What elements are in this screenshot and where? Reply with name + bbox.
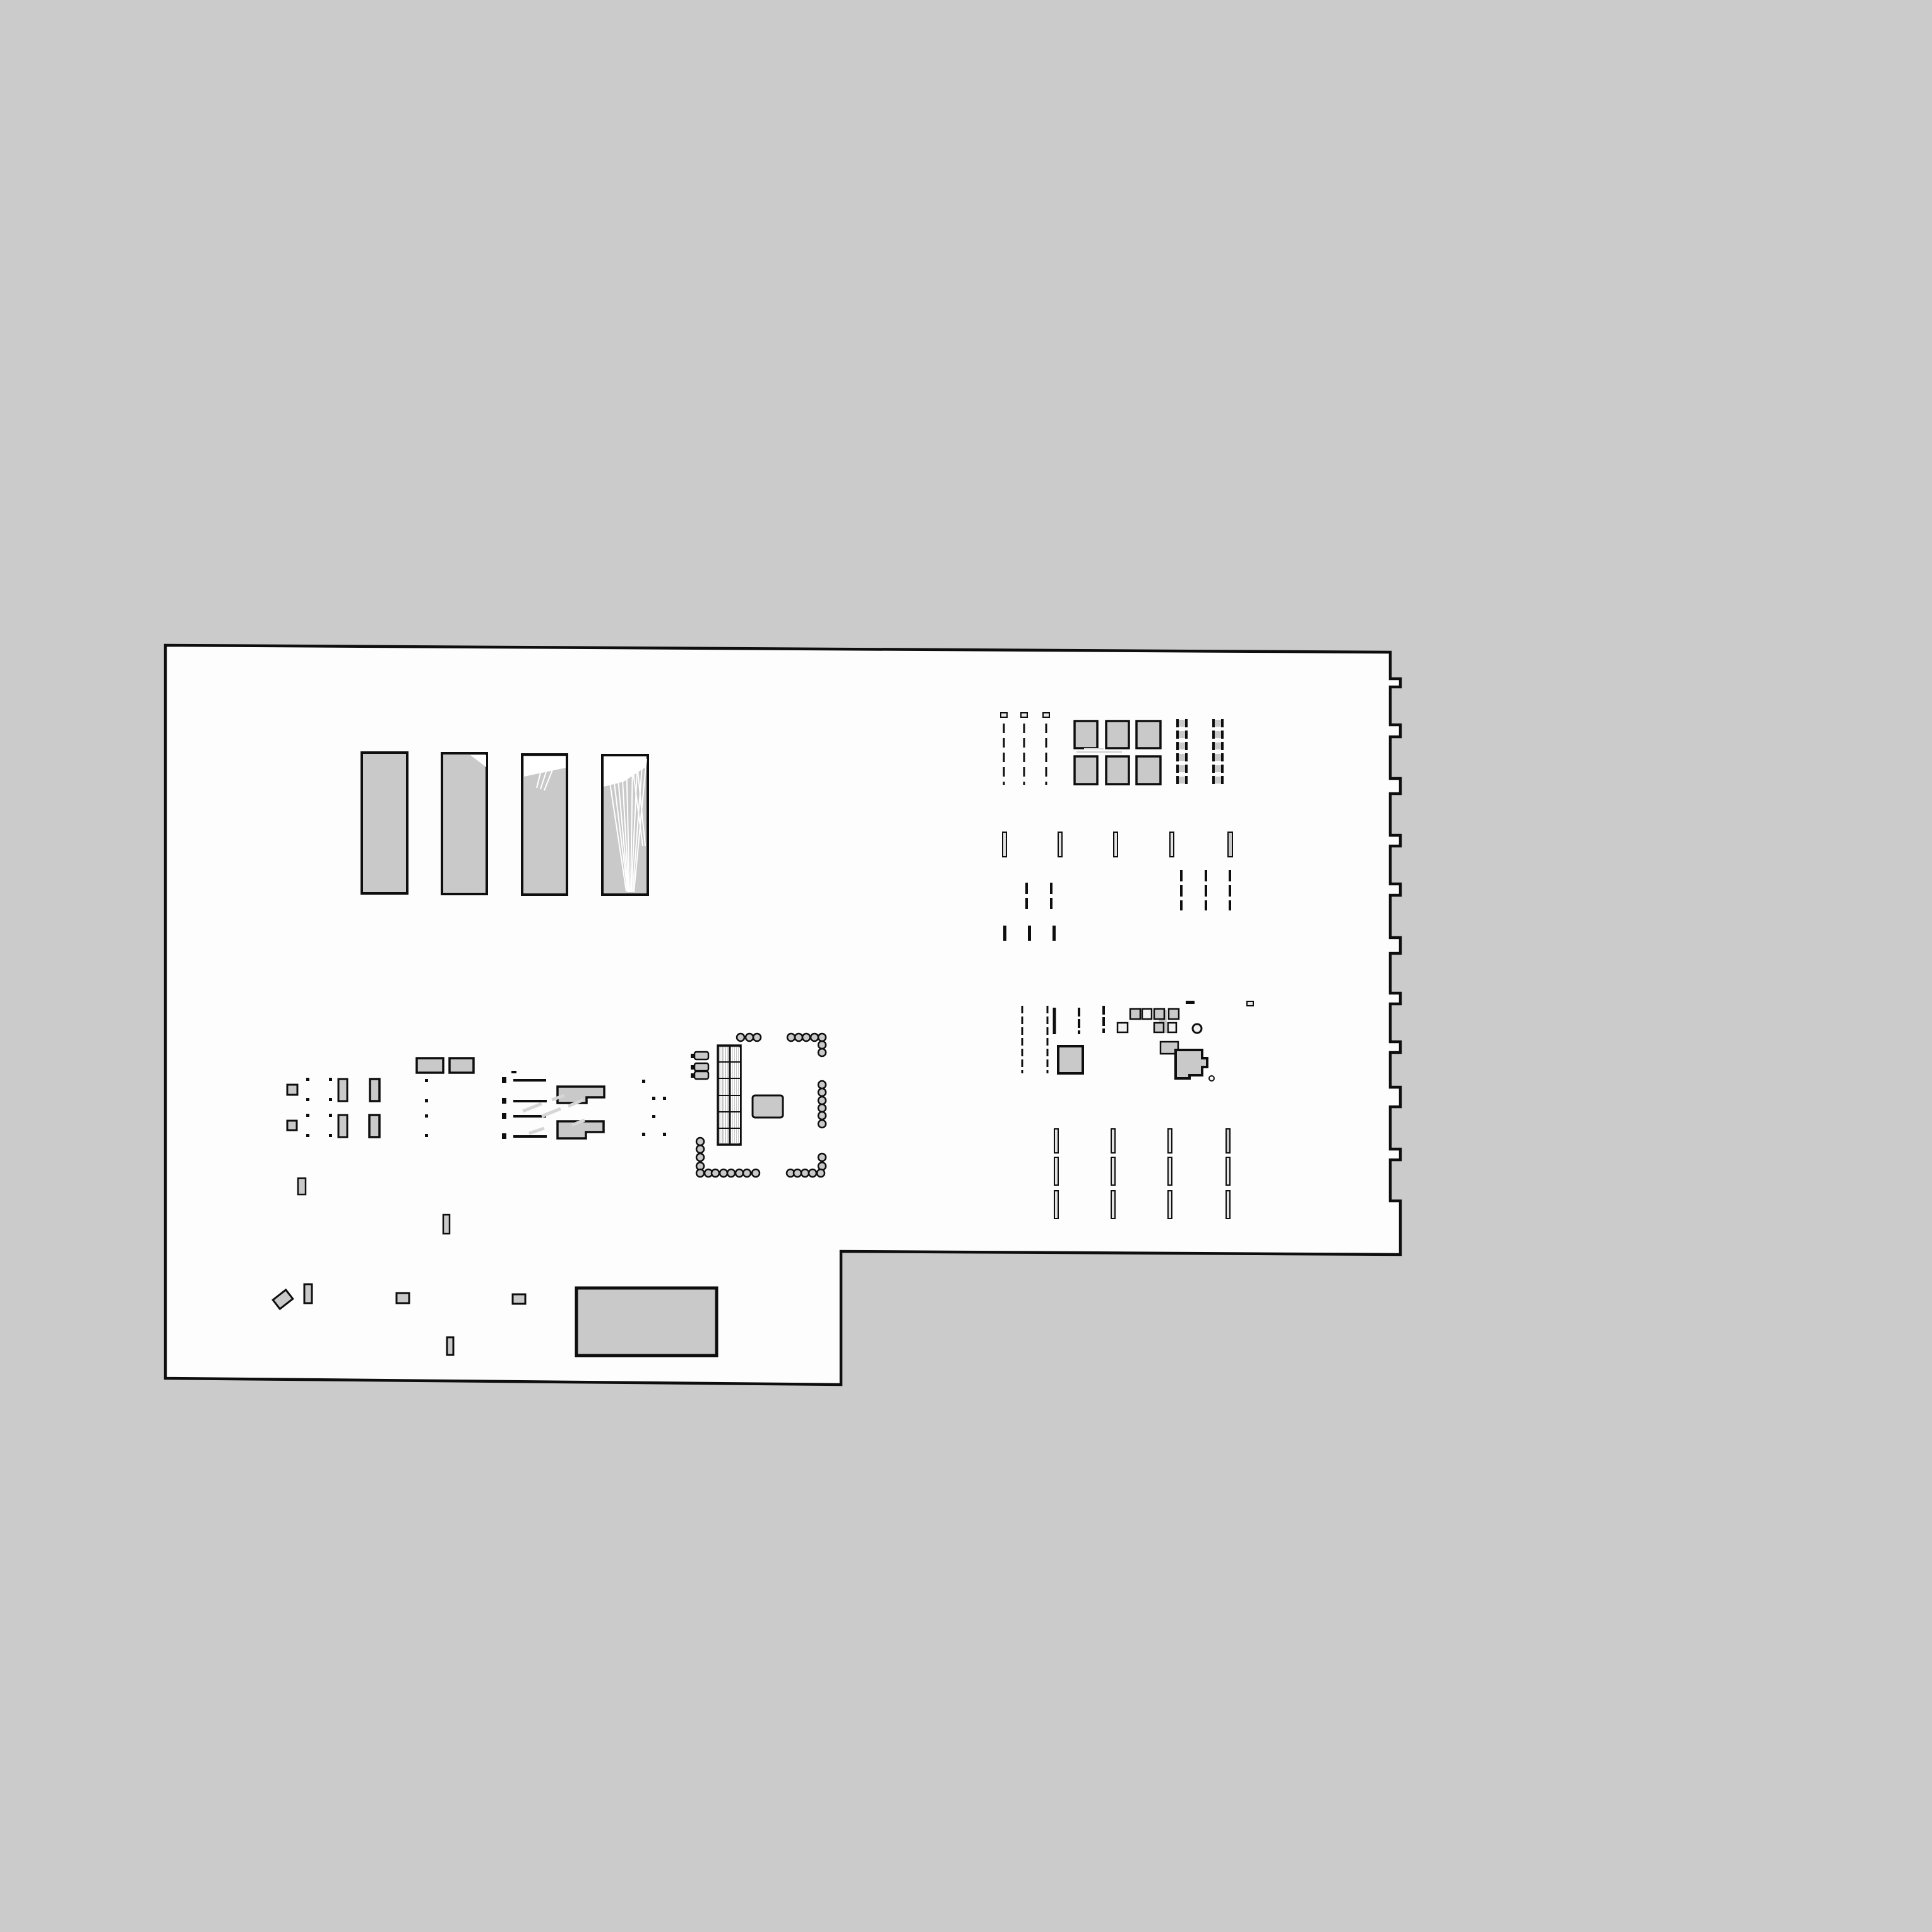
- round-table: [1193, 1024, 1202, 1033]
- rack-cell: [1176, 753, 1179, 761]
- rack-leg: [1054, 1157, 1058, 1185]
- rack-cell: [1214, 742, 1222, 749]
- map-stage: [0, 0, 1932, 1932]
- post-dot: [425, 1099, 428, 1102]
- storage-block: [1106, 756, 1129, 784]
- rack-cell: [1221, 742, 1224, 750]
- rack-cell: [1185, 742, 1188, 750]
- cabinet: [338, 1079, 347, 1101]
- rack-leg: [1168, 1129, 1172, 1153]
- post-dot: [306, 1134, 309, 1137]
- stool: [794, 1169, 801, 1177]
- stool: [736, 1169, 743, 1177]
- rack-cell: [1185, 753, 1188, 761]
- stool: [795, 1034, 802, 1041]
- equipment-box: [1058, 1046, 1083, 1073]
- stool: [720, 1169, 727, 1177]
- post-dot: [663, 1133, 666, 1136]
- shelf-end: [1003, 832, 1006, 857]
- chair: [695, 1063, 708, 1071]
- floor-map-canvas: [0, 0, 1932, 1932]
- post-dot: [652, 1097, 655, 1100]
- rack-leg: [1226, 1157, 1230, 1185]
- wall-mark: [1186, 1001, 1195, 1004]
- post-dot: [329, 1078, 332, 1081]
- stool: [696, 1154, 704, 1161]
- post-dot: [642, 1080, 645, 1083]
- stool: [802, 1034, 810, 1041]
- rack-leg: [1054, 1191, 1058, 1219]
- rack-cell: [1214, 731, 1222, 738]
- rack-cell: [1221, 776, 1224, 784]
- stool: [818, 1120, 826, 1128]
- shelf-end: [1058, 832, 1062, 857]
- stool: [712, 1169, 719, 1177]
- stool: [818, 1081, 826, 1088]
- rack-cell: [1221, 730, 1224, 739]
- rack-cell: [1221, 765, 1224, 773]
- equipment-unit: [1169, 1009, 1179, 1019]
- rack-cell: [1214, 765, 1222, 772]
- wall-mark: [1247, 1001, 1253, 1006]
- post-dot: [306, 1098, 309, 1101]
- cabinet: [298, 1178, 306, 1195]
- desk-end: [502, 1077, 506, 1083]
- post-dot: [329, 1098, 332, 1101]
- cabinet: [287, 1085, 297, 1095]
- rack-marker: [1043, 713, 1049, 717]
- stool: [696, 1138, 704, 1145]
- rack-cell: [1214, 777, 1222, 784]
- desk-end: [502, 1133, 506, 1139]
- rack-cell: [1176, 730, 1179, 739]
- stool: [752, 1169, 760, 1177]
- shelf-post: [1052, 926, 1056, 941]
- platform: [576, 1288, 717, 1356]
- rack-cell: [1178, 765, 1186, 772]
- rack-cell: [1212, 765, 1215, 773]
- shelf-post: [1028, 926, 1031, 941]
- machine-blob: [1176, 1050, 1207, 1078]
- rack-leg: [1168, 1157, 1172, 1185]
- post-dot: [663, 1097, 666, 1100]
- table: [417, 1058, 443, 1073]
- rack-cell: [1176, 719, 1179, 727]
- rack-leg: [1226, 1191, 1230, 1219]
- cabinet: [443, 1215, 450, 1234]
- stool: [787, 1034, 795, 1041]
- box: [304, 1284, 312, 1303]
- stool: [818, 1034, 826, 1041]
- stool: [818, 1049, 826, 1056]
- rack-cell: [1214, 754, 1222, 761]
- stool: [818, 1154, 826, 1161]
- post-dot: [425, 1114, 428, 1118]
- rack-cell: [1221, 753, 1224, 761]
- post-dot: [329, 1134, 332, 1137]
- desk-end: [511, 1071, 516, 1073]
- rack-leg: [1111, 1191, 1115, 1219]
- stool: [753, 1034, 761, 1041]
- rack-cell: [1212, 753, 1215, 761]
- box: [447, 1337, 453, 1355]
- equipment-unit: [1130, 1009, 1140, 1019]
- rack-cell: [1214, 720, 1222, 727]
- equipment-unit: [1168, 1023, 1176, 1032]
- stool: [809, 1169, 816, 1177]
- chair: [695, 1071, 708, 1079]
- post-dot: [306, 1114, 309, 1117]
- rack-cell: [1178, 731, 1186, 738]
- stool: [696, 1169, 704, 1177]
- stool: [818, 1112, 826, 1119]
- rack-cell: [1185, 776, 1188, 784]
- rack-leg: [1226, 1129, 1230, 1153]
- rack-marker: [1001, 713, 1007, 717]
- rack-cell: [1178, 754, 1186, 761]
- equipment-unit: [1118, 1023, 1128, 1032]
- table: [450, 1058, 474, 1073]
- stool: [727, 1169, 735, 1177]
- desk-end: [502, 1113, 506, 1119]
- equipment-unit: [1142, 1009, 1152, 1019]
- rack-cell: [1178, 777, 1186, 784]
- rack-cell: [1178, 720, 1186, 727]
- stool: [818, 1104, 826, 1112]
- table: [753, 1095, 783, 1118]
- storage-block: [1106, 721, 1129, 748]
- rack-leg: [1111, 1157, 1115, 1185]
- storage-block: [1075, 756, 1097, 784]
- stool: [817, 1169, 825, 1177]
- rack-cell: [1221, 719, 1224, 727]
- rack-leg: [1168, 1191, 1172, 1219]
- shelf-end: [1114, 832, 1118, 857]
- box: [397, 1293, 409, 1303]
- post-dot: [652, 1115, 655, 1118]
- rack-cell: [1212, 719, 1215, 727]
- cabinet: [370, 1079, 379, 1101]
- equipment-unit: [1154, 1009, 1164, 1019]
- rack-cell: [1185, 765, 1188, 773]
- stool: [696, 1145, 704, 1153]
- storage-block: [1075, 721, 1097, 748]
- post-dot: [425, 1134, 428, 1137]
- stool: [737, 1034, 744, 1041]
- stool: [811, 1034, 818, 1041]
- rack-cell: [1178, 742, 1186, 749]
- stool: [818, 1041, 826, 1049]
- rack-marker: [1021, 713, 1027, 717]
- stool: [801, 1169, 809, 1177]
- desk-end: [502, 1098, 506, 1104]
- rack-cell: [1176, 776, 1179, 784]
- post-dot: [642, 1133, 645, 1136]
- storage-block: [1136, 756, 1160, 784]
- rack-cell: [1176, 765, 1179, 773]
- cabinet: [338, 1115, 347, 1137]
- stool: [743, 1169, 751, 1177]
- shelf-post: [1003, 926, 1006, 941]
- rack-cell: [1185, 719, 1188, 727]
- shelf-end: [1170, 832, 1174, 857]
- post-dot: [306, 1078, 309, 1081]
- cabinet: [369, 1115, 379, 1137]
- stool: [746, 1034, 753, 1041]
- box: [513, 1294, 525, 1304]
- rack-cell: [1176, 742, 1179, 750]
- stool: [818, 1088, 826, 1096]
- stool: [818, 1097, 826, 1104]
- rack-cell: [1185, 730, 1188, 739]
- rack-cell: [1212, 730, 1215, 739]
- rack-cell: [1212, 742, 1215, 750]
- storage-block: [1136, 721, 1160, 748]
- room-2: [442, 753, 487, 894]
- rack-leg: [1111, 1129, 1115, 1153]
- rack-leg: [1054, 1129, 1058, 1153]
- rack-cell: [1212, 776, 1215, 784]
- equipment-unit: [1154, 1023, 1164, 1032]
- shelf-end: [1228, 832, 1232, 857]
- chair: [695, 1052, 708, 1059]
- room-1: [362, 753, 407, 893]
- post-dot: [425, 1079, 428, 1082]
- cabinet: [287, 1121, 297, 1130]
- post-dot: [329, 1114, 332, 1117]
